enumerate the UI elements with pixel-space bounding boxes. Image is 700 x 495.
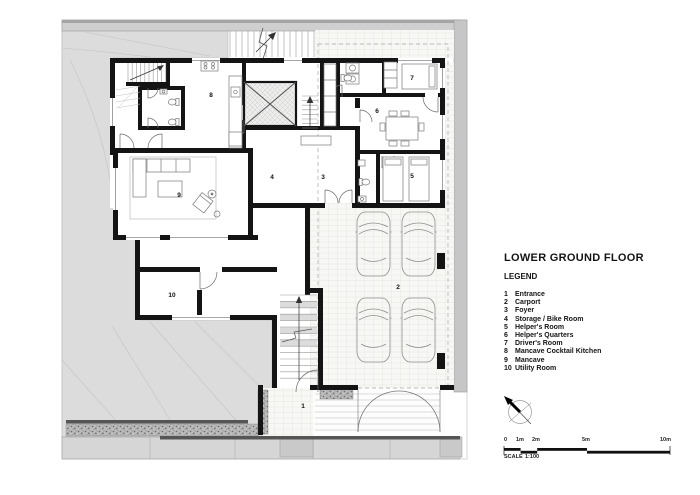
- legend-item: 4Storage / Bike Room: [504, 316, 694, 324]
- room-marker-storage: 4: [270, 175, 274, 182]
- scale-tick: 2m: [532, 437, 540, 443]
- legend-item: 1Entrance: [504, 291, 694, 299]
- legend-item: 9Mancave: [504, 357, 694, 365]
- floor-plan-drawing: [0, 0, 700, 495]
- room-marker-helpers-room: 5: [410, 174, 414, 181]
- scale-tick: 10m: [660, 437, 671, 443]
- legend-item: 8Mancave Cocktail Kitchen: [504, 348, 694, 356]
- scale-tick: 0: [504, 437, 507, 443]
- room-marker-foyer: 3: [321, 175, 325, 182]
- room-marker-carport: 2: [396, 285, 400, 292]
- legend-list: 1Entrance 2Carport 3Foyer 4Storage / Bik…: [504, 291, 694, 373]
- legend-item: 3Foyer: [504, 307, 694, 315]
- room-marker-cocktail-kitchen: 8: [209, 93, 213, 100]
- scale-bar-labels: 0 1m 2m 5m 10m SCALE 1:100: [504, 437, 679, 467]
- scale-ratio: 1:100: [525, 454, 539, 460]
- legend-item: 7Driver's Room: [504, 340, 694, 348]
- room-marker-entrance: 1: [301, 404, 305, 411]
- room-marker-drivers-room: 7: [410, 76, 414, 83]
- scale-tick: 1m: [516, 437, 524, 443]
- room-marker-utility: 10: [168, 293, 175, 300]
- north-arrow-icon: [504, 396, 532, 424]
- sidewalk: [62, 437, 462, 459]
- legend-item: 5Helper's Room: [504, 324, 694, 332]
- scale-tick: 5m: [582, 437, 590, 443]
- legend-heading: LEGEND: [504, 272, 694, 281]
- plan-info-panel: LOWER GROUND FLOOR LEGEND 1Entrance 2Car…: [504, 252, 694, 373]
- room-marker-helpers-quarters: 6: [375, 109, 379, 116]
- floorplan-sheet: 1 2 3 4 5 6 7 8 9 10 LOWER GROUND FLOOR …: [0, 0, 700, 495]
- legend-item: 6Helper's Quarters: [504, 332, 694, 340]
- outdoor-stair-top: [230, 28, 314, 59]
- scale-label: SCALE: [504, 454, 523, 460]
- room-marker-mancave: 9: [177, 193, 181, 200]
- legend-item: 10Utility Room: [504, 365, 694, 373]
- legend-item: 2Carport: [504, 299, 694, 307]
- page-title: LOWER GROUND FLOOR: [504, 252, 694, 264]
- void-shaft: [244, 82, 296, 126]
